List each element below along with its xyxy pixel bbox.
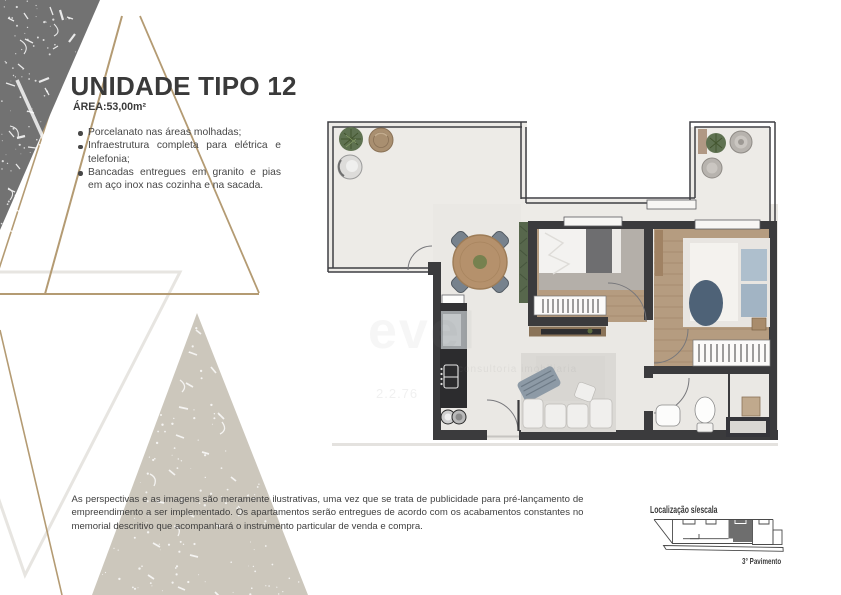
svg-text:2.2.76: 2.2.76 xyxy=(376,386,418,401)
svg-text:evel: evel xyxy=(368,302,477,360)
svg-text:consultoria imobiliaria: consultoria imobiliaria xyxy=(458,364,577,375)
